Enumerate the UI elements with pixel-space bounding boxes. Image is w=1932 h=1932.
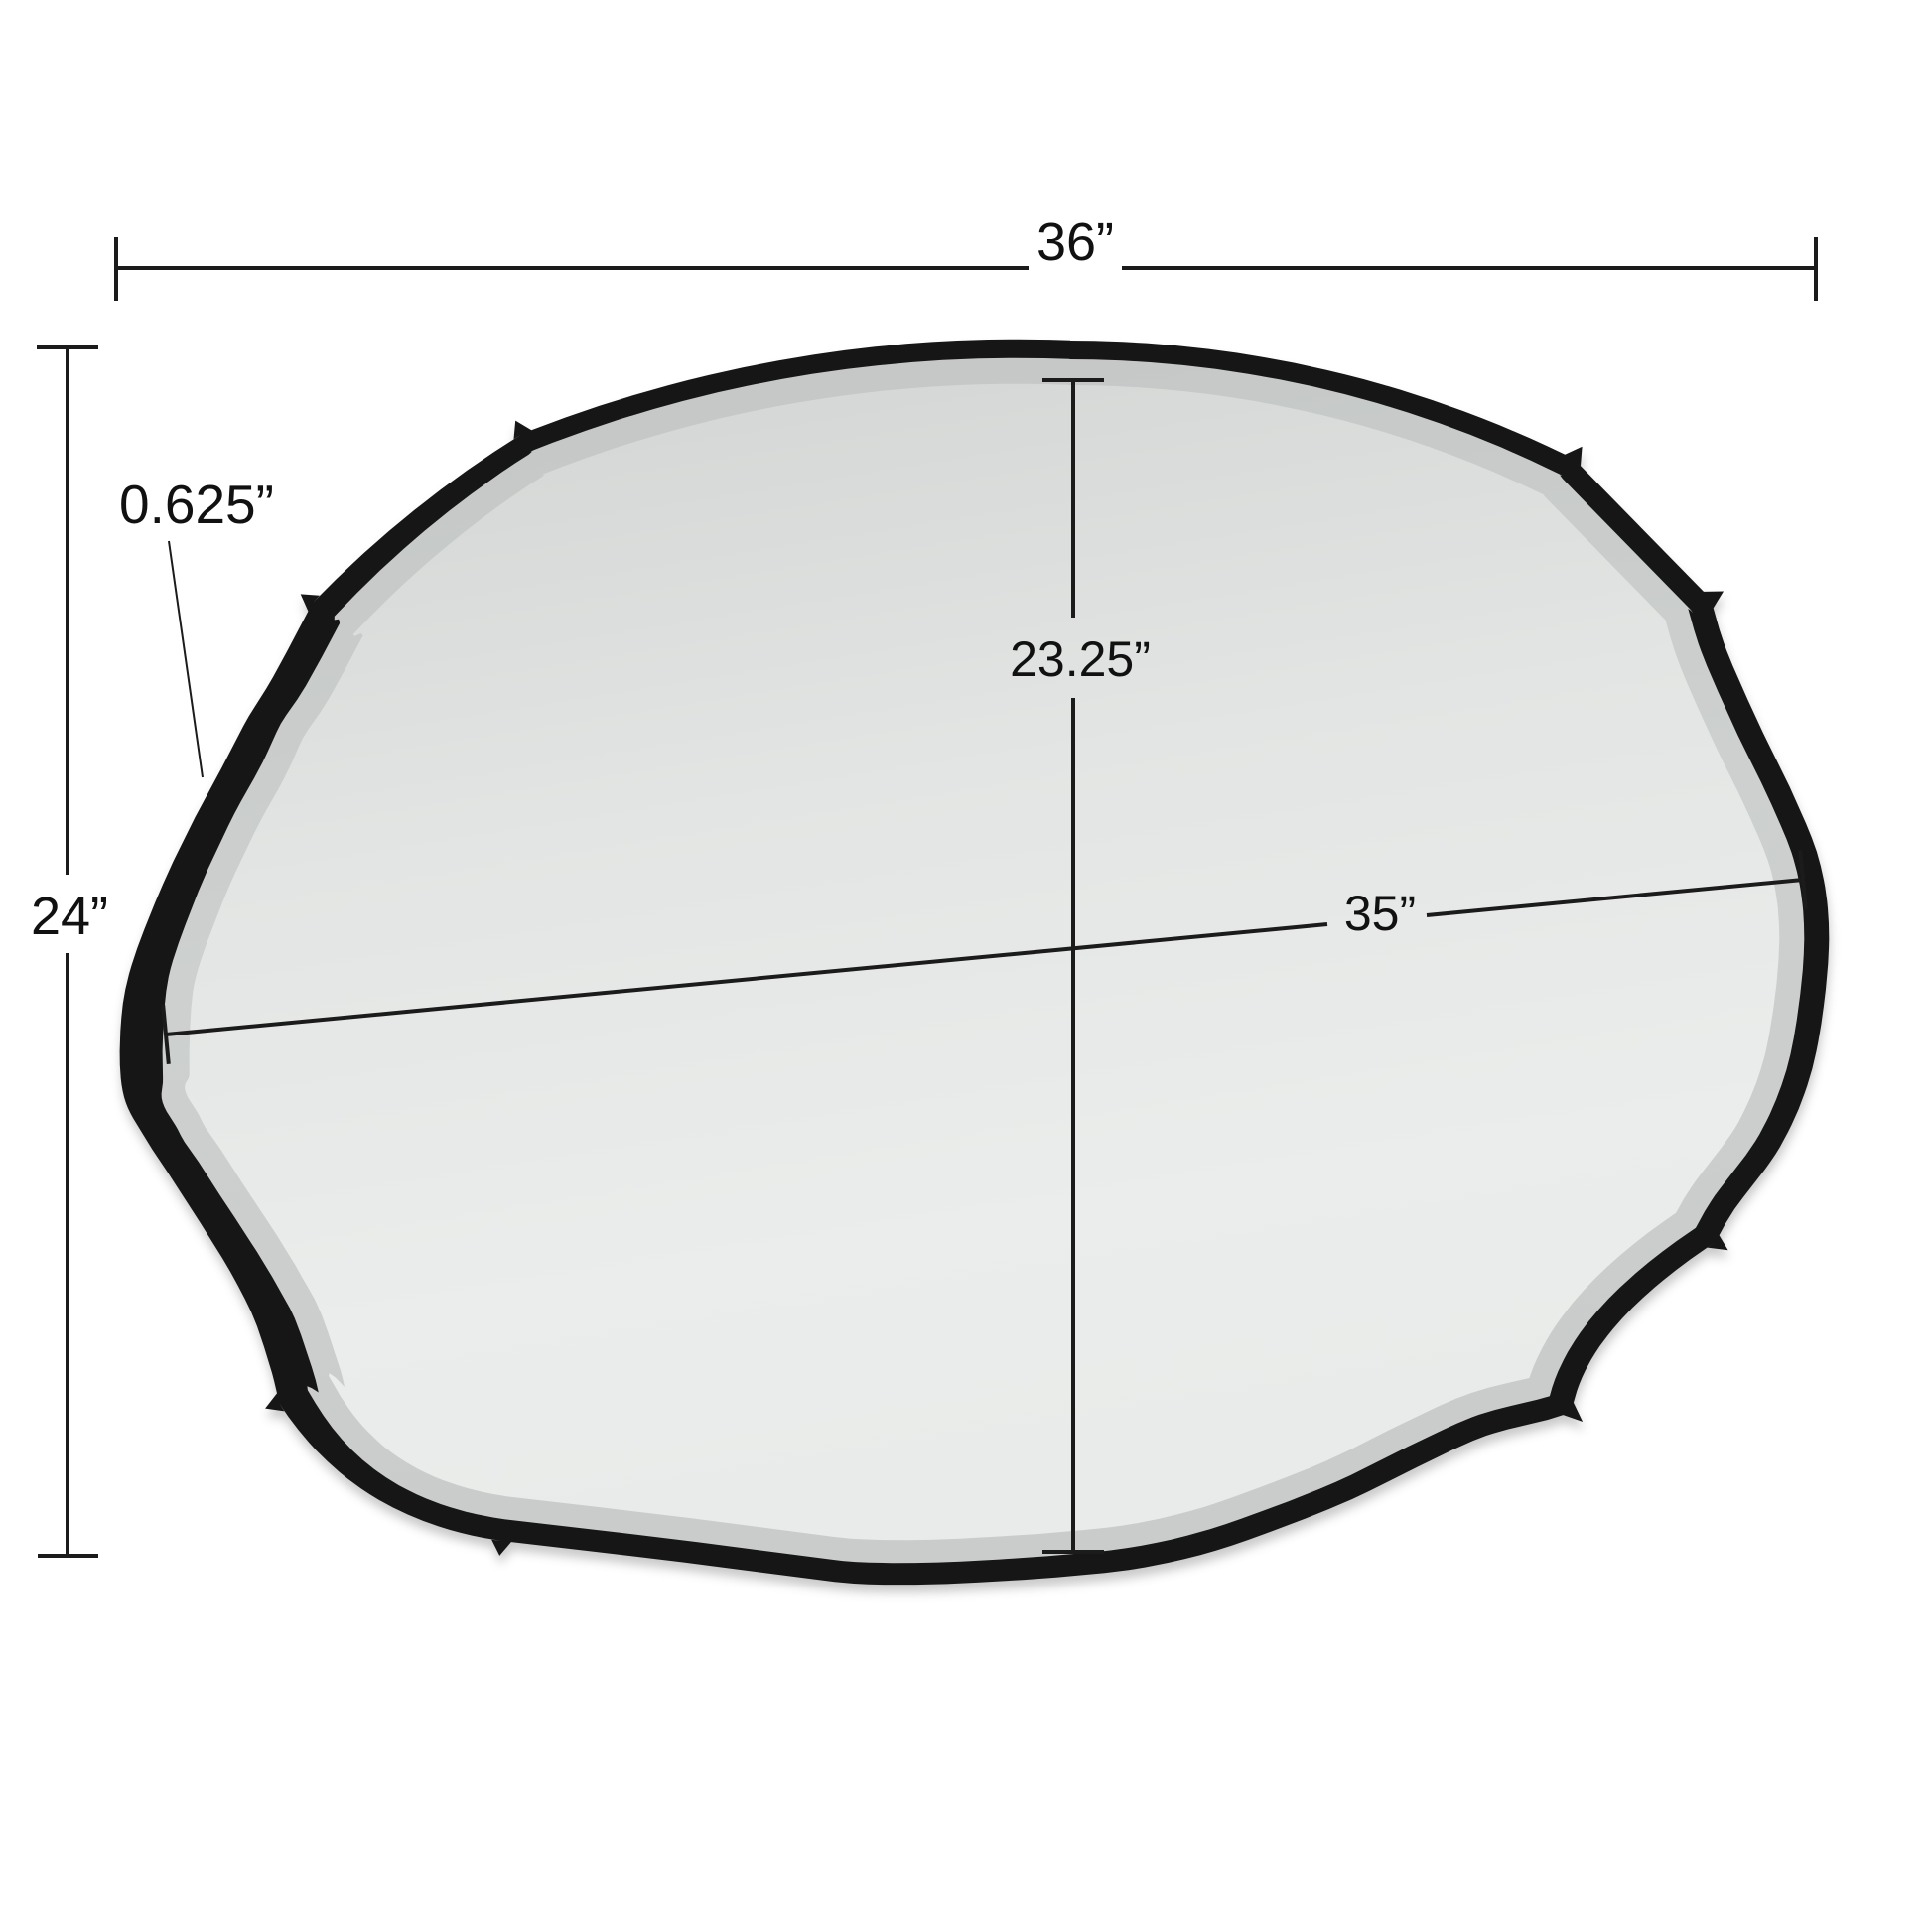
svg-text:24”: 24” [31, 887, 108, 946]
svg-text:23.25”: 23.25” [1010, 631, 1151, 687]
svg-text:36”: 36” [1036, 212, 1114, 272]
svg-text:0.625”: 0.625” [119, 474, 274, 535]
svg-text:35”: 35” [1344, 886, 1416, 941]
